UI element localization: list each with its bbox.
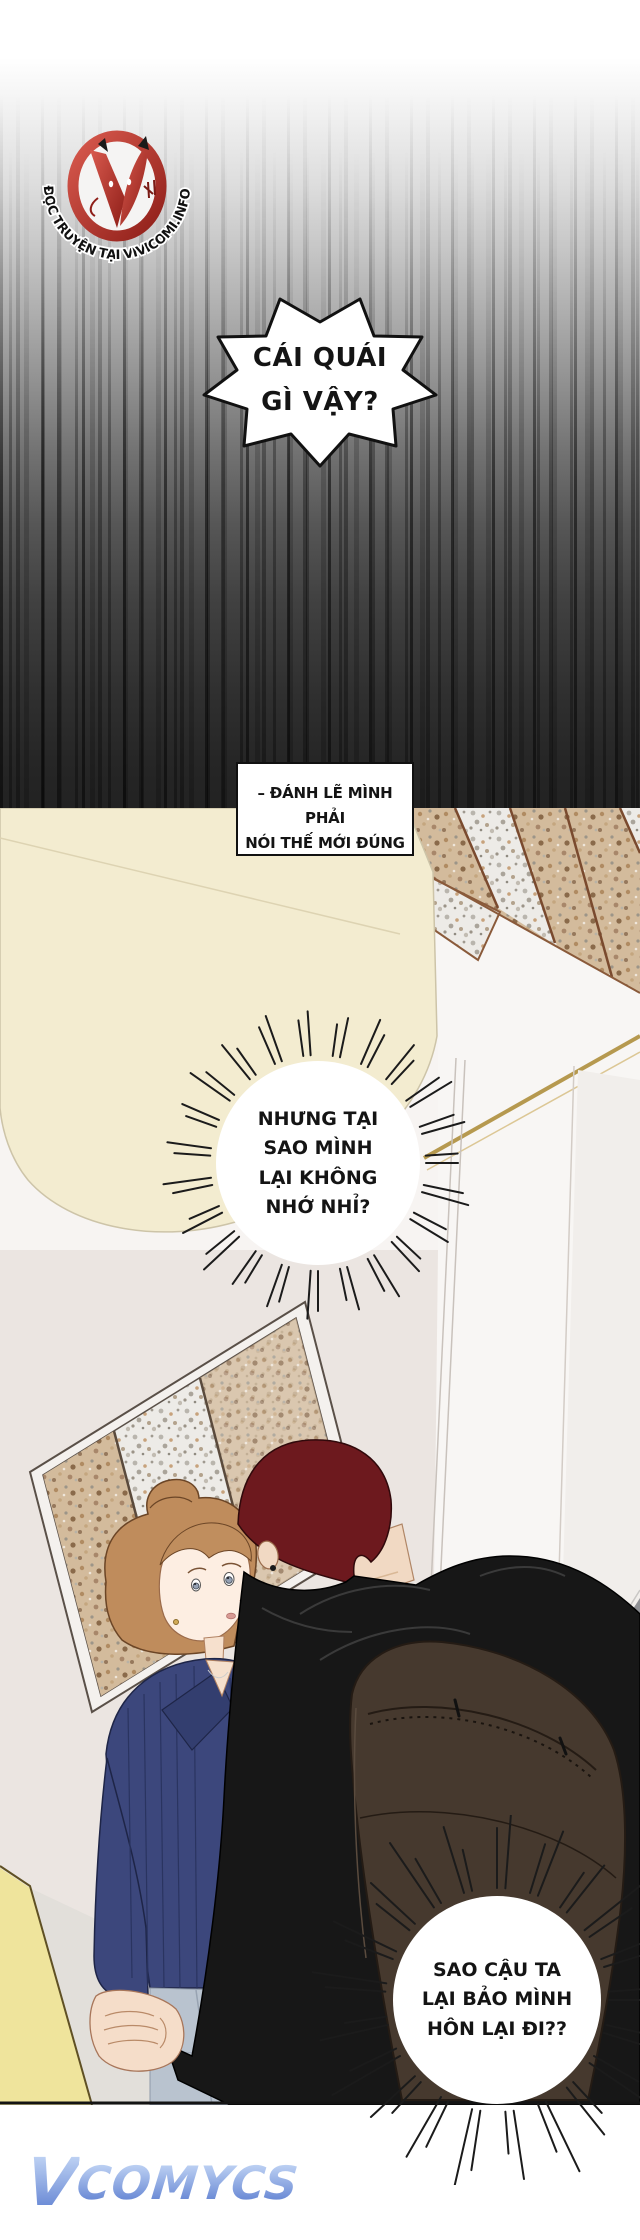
bubble-line: NHỚ NHỈ? (218, 1193, 418, 1222)
thought-bubble-2-text: SAO CẬU TA LẠI BẢO MÌNH HÔN LẠI ĐI?? (397, 1956, 597, 2044)
bubble-line: NHƯNG TẠI (218, 1105, 418, 1134)
shout-bubble-text: CÁI QUÁI GÌ VẬY? (220, 337, 420, 424)
thought-bubble-1-text: NHƯNG TẠI SAO MÌNH LẠI KHÔNG NHỚ NHỈ? (218, 1105, 418, 1223)
caption-line: NÓI THẾ MỚI ĐÚNG (238, 831, 412, 856)
bubble-line: LẠI KHÔNG (218, 1164, 418, 1193)
bubble-line: SAO MÌNH (218, 1134, 418, 1163)
man-earring (270, 1565, 276, 1571)
woman-mouth (227, 1613, 236, 1619)
caption-line: – ĐÁNH LẼ MÌNH PHẢI (238, 781, 412, 831)
bubble-line: SAO CẬU TA (397, 1956, 597, 1985)
comic-page: 그림 해숲 ĐỌC TRUYỆN TẠI VIVICOMI.INFO (0, 0, 640, 2240)
bubble-line: LẠI BẢO MÌNH (397, 1985, 597, 2014)
caption-box: – ĐÁNH LẼ MÌNH PHẢI NÓI THẾ MỚI ĐÚNG (236, 762, 414, 856)
watermark-rest: COMYCS (75, 2160, 301, 2206)
bubble-line: GÌ VẬY? (220, 381, 420, 425)
vcomycs-watermark: VCOMYCS (23, 2150, 303, 2216)
woman-earring (174, 1620, 179, 1625)
bubble-line: CÁI QUÁI (220, 337, 420, 381)
bubble-line: HÔN LẠI ĐI?? (397, 2015, 597, 2044)
watermark-initial: V (23, 2150, 81, 2216)
site-stamp-logo: ĐỌC TRUYỆN TẠI VIVICOMI.INFO (32, 98, 202, 278)
